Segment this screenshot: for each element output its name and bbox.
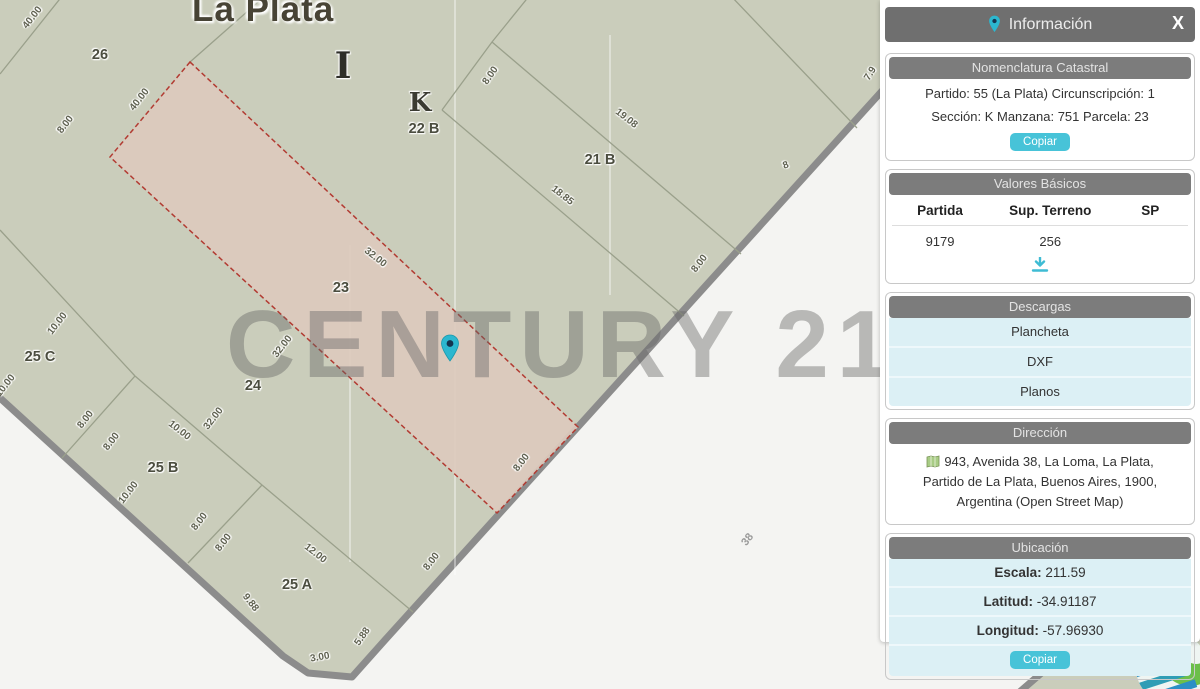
- card-ubicacion-title: Ubicación: [889, 537, 1191, 559]
- card-valores-title: Valores Básicos: [889, 173, 1191, 195]
- col-sp: SP: [1113, 203, 1187, 218]
- card-ubicacion: Ubicación Escala: 211.59 Latitud: -34.91…: [885, 533, 1195, 680]
- info-panel: Información X Nomenclatura Catastral Par…: [880, 0, 1200, 642]
- cadastral-map-app: 40.002640.008.00IK22 B8.0019.0821 B18.85…: [0, 0, 1200, 689]
- panel-title: Información: [1009, 16, 1093, 34]
- info-panel-header: Información X: [885, 7, 1195, 42]
- col-sup-terreno: Sup. Terreno: [987, 203, 1113, 218]
- card-nomenclatura: Nomenclatura Catastral Partido: 55 (La P…: [885, 53, 1195, 161]
- download-link-dxf[interactable]: DXF: [889, 348, 1191, 378]
- nomenclatura-line: Partido: 55 (La Plata) Circunscripción: …: [889, 79, 1191, 102]
- longitud-row: Longitud: -57.96930: [889, 617, 1191, 646]
- watermark: CENTURY 21: [226, 297, 898, 393]
- direccion-line: 943, Avenida 38, La Loma, La Plata,: [893, 452, 1187, 472]
- download-link-planos[interactable]: Planos: [889, 378, 1191, 406]
- sup-terreno-value: 256: [987, 234, 1113, 249]
- valores-table-row: 9179 256: [889, 226, 1191, 255]
- osm-map-icon: [926, 455, 940, 468]
- pin-icon: [988, 15, 1001, 34]
- card-valores: Valores Básicos Partida Sup. Terreno SP …: [885, 169, 1195, 284]
- valores-table-header: Partida Sup. Terreno SP: [892, 195, 1188, 226]
- direccion-line: Partido de La Plata, Buenos Aires, 1900,: [893, 472, 1187, 492]
- card-direccion: Dirección 943, Avenida 38, La Loma, La P…: [885, 418, 1195, 525]
- download-icon[interactable]: [1031, 257, 1049, 272]
- download-link-plancheta[interactable]: Plancheta: [889, 318, 1191, 348]
- direccion-line: Argentina (Open Street Map): [893, 492, 1187, 512]
- partida-value: 9179: [893, 234, 987, 249]
- sp-value: [1113, 234, 1187, 249]
- col-partida: Partida: [893, 203, 987, 218]
- nomenclatura-line: Sección: K Manzana: 751 Parcela: 23: [889, 102, 1191, 125]
- location-marker-icon: [440, 334, 460, 364]
- card-nomenclatura-title: Nomenclatura Catastral: [889, 57, 1191, 79]
- latitud-row: Latitud: -34.91187: [889, 588, 1191, 617]
- escala-row: Escala: 211.59: [889, 559, 1191, 588]
- copy-nomenclatura-button[interactable]: Copiar: [1010, 133, 1070, 151]
- copy-ubicacion-button[interactable]: Copiar: [1010, 651, 1070, 669]
- map-city-title: La Plata: [192, 0, 334, 30]
- ubicacion-copy-row: Copiar: [889, 646, 1191, 676]
- card-descargas-title: Descargas: [889, 296, 1191, 318]
- card-descargas: Descargas Plancheta DXF Planos: [885, 292, 1195, 410]
- close-icon[interactable]: X: [1172, 13, 1184, 34]
- card-direccion-title: Dirección: [889, 422, 1191, 444]
